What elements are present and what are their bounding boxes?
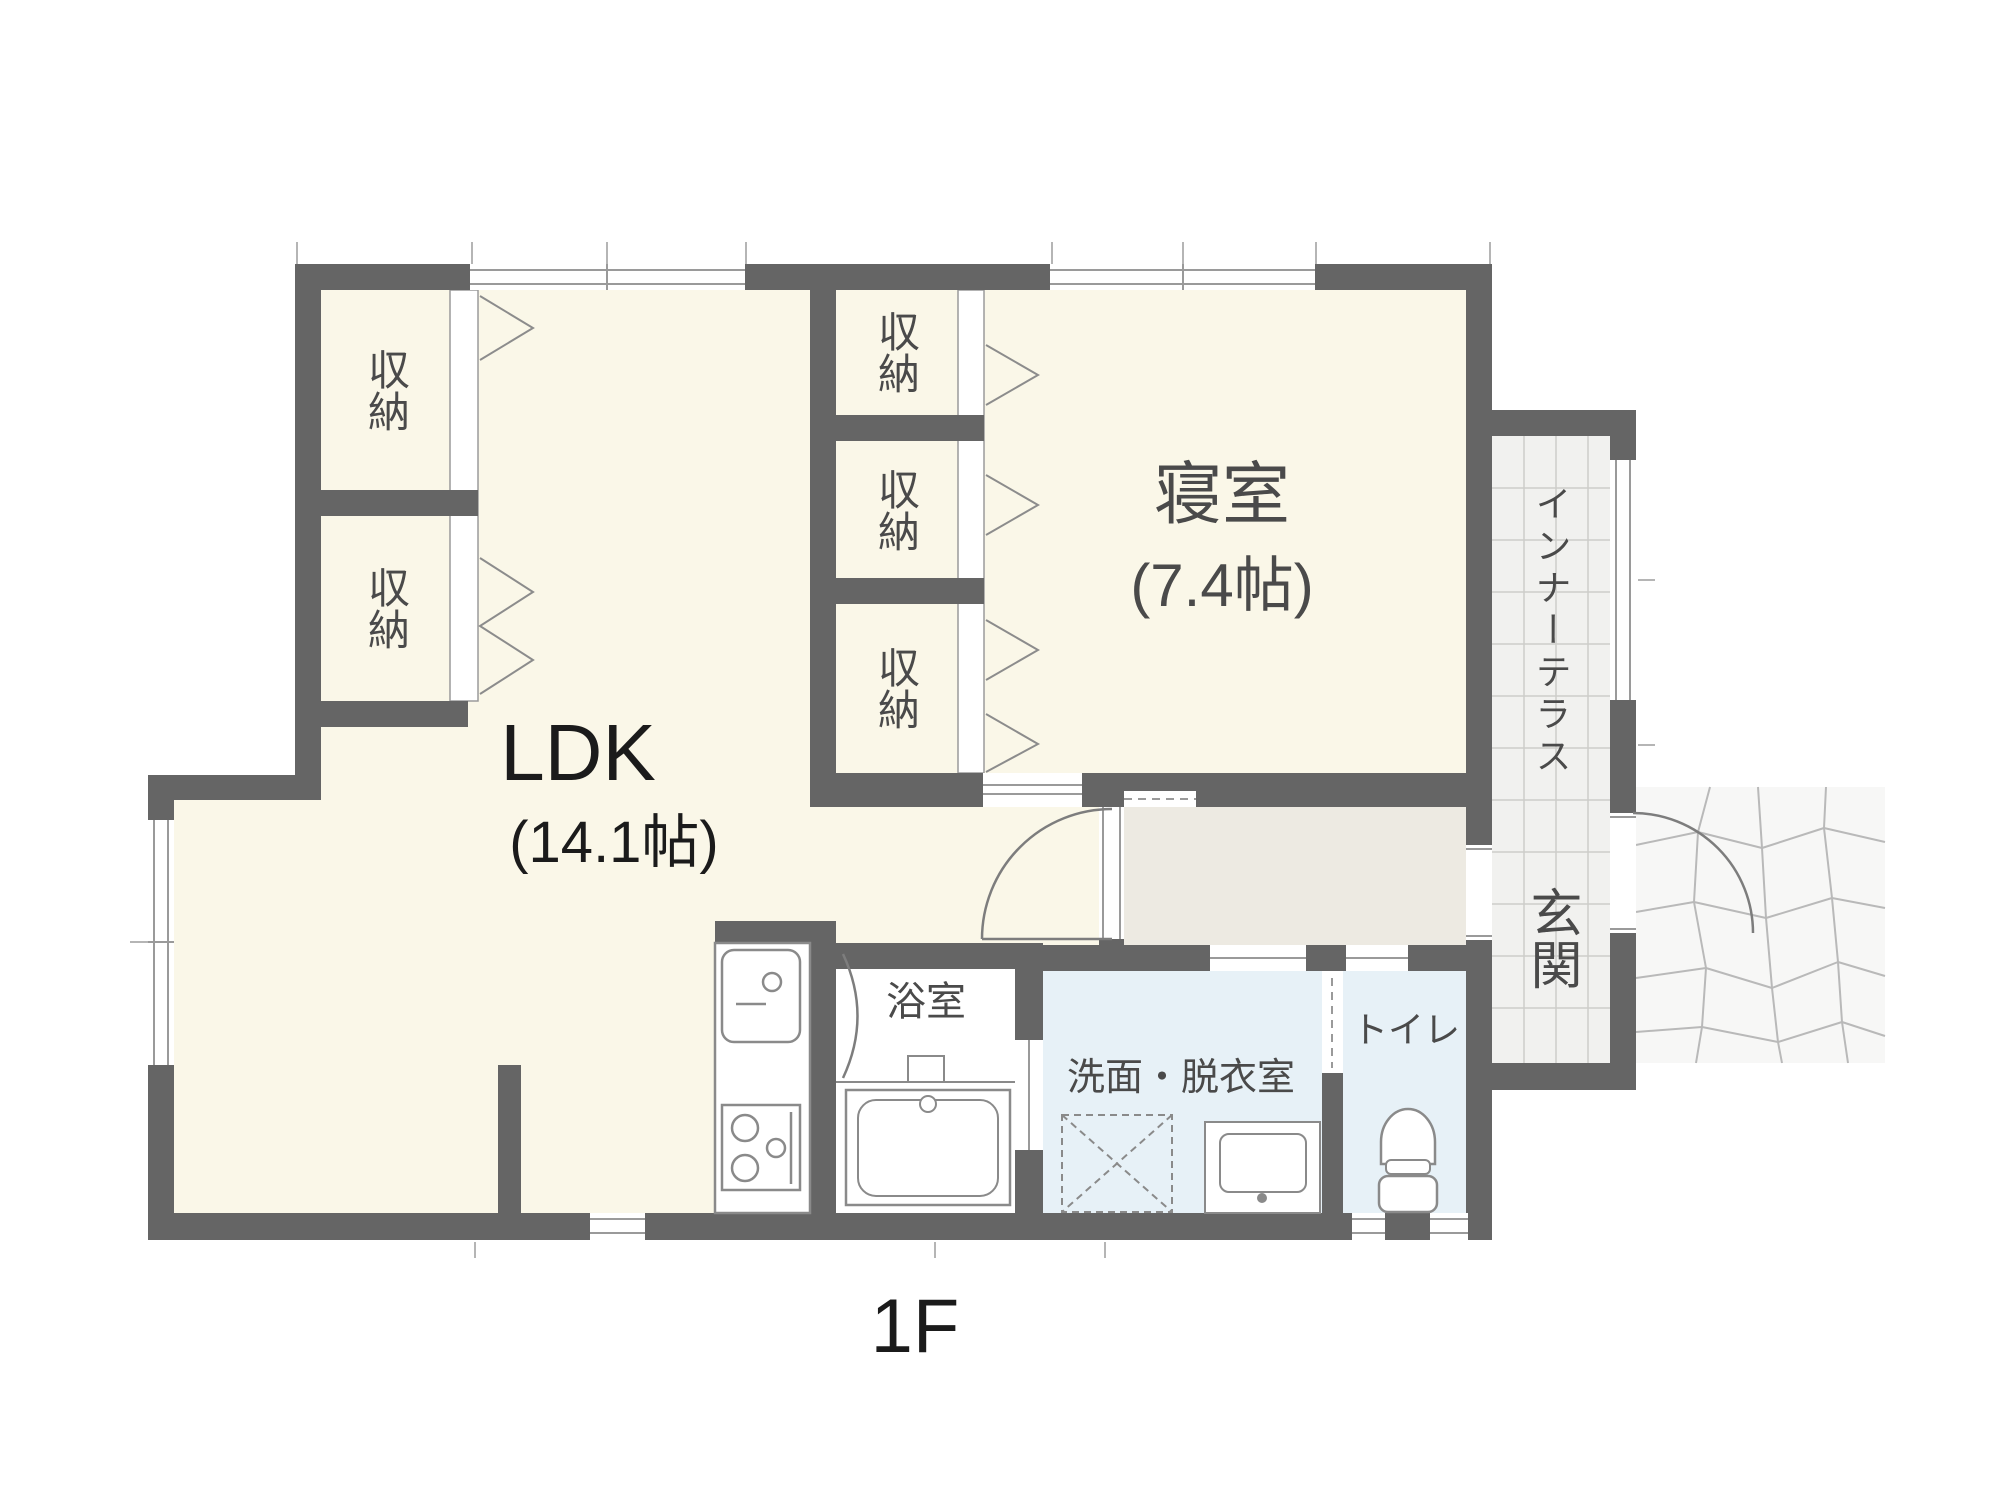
label-floor-1f: 1F [871,1284,960,1369]
window-bottom-washroom [1352,1213,1385,1240]
label-bedroom-size: (7.4帖) [1130,552,1313,619]
window-bottom-ldk [590,1213,645,1240]
label-washroom: 洗面・脱衣室 [1067,1057,1295,1099]
label-ldk: LDK [500,708,656,797]
floor-ldk-extension [174,800,321,1213]
label-closet-1: 収納 [363,348,410,432]
label-bathroom: 浴室 [886,980,966,1024]
label-closet-5: 収納 [873,646,920,730]
label-closet-4: 収納 [873,468,920,552]
floor-plan-svg: 収納 収納 収納 収納 収納 寝室 (7.4帖) 浴室 洗面・脱衣室 トイレ イ… [0,0,2000,1500]
label-bedroom: 寝室 [1154,457,1290,533]
opening-entrance-door [1610,813,1636,933]
label-closet-2: 収納 [363,566,410,650]
label-closet-3: 収納 [873,310,920,394]
window-bottom-toilet [1430,1213,1468,1240]
floor-hallway [1124,807,1466,945]
label-entrance: 玄関 [1522,886,1580,990]
window-terrace [1610,460,1636,700]
toilet-icon [1379,1109,1437,1212]
label-inner-terrace: インナーテラス [1531,485,1572,779]
label-toilet: トイレ [1352,1009,1460,1050]
floor-plan: 収納 収納 収納 収納 収納 寝室 (7.4帖) 浴室 洗面・脱衣室 トイレ イ… [0,0,2000,1500]
kitchen-icon [715,943,810,1213]
vanity-sink-icon [1205,1122,1320,1213]
closet-channel-middle [958,290,984,773]
opening-bedroom-track [983,773,1082,807]
label-ldk-size: (14.1帖) [509,810,719,875]
opening-hall-genkan [1466,845,1492,940]
